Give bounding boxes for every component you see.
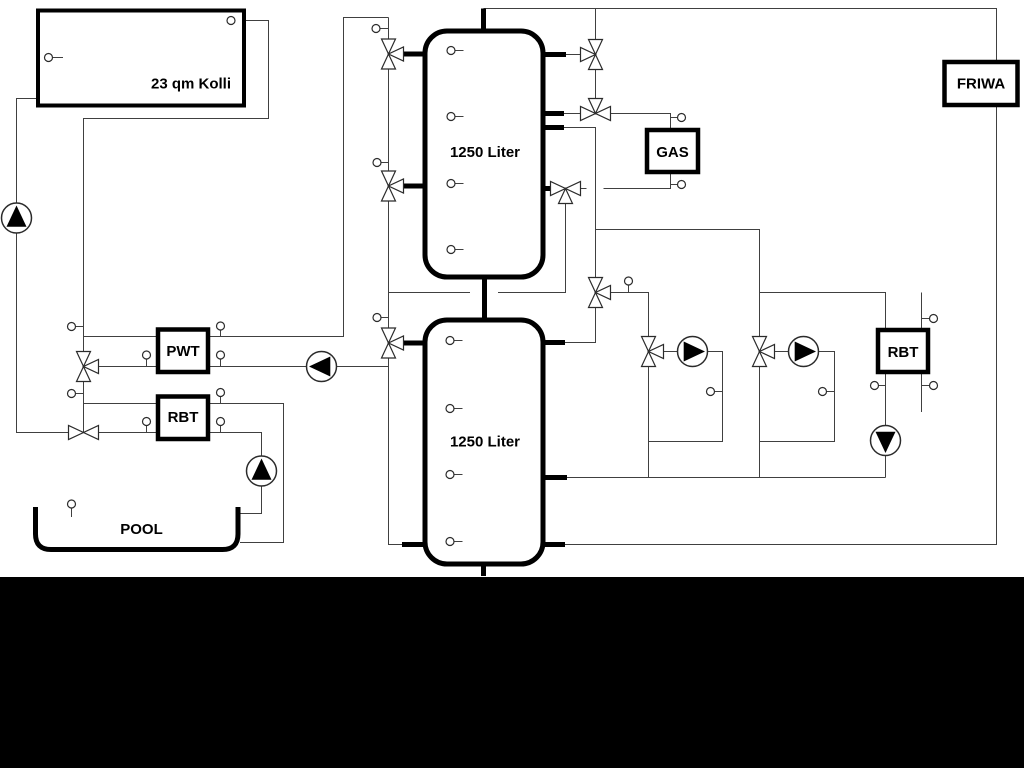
svg-text:POOL: POOL (120, 521, 163, 538)
svg-text:RBT: RBT (168, 409, 199, 426)
svg-text:23 qm Kolli: 23 qm Kolli (151, 76, 231, 93)
svg-text:PWT: PWT (166, 343, 199, 360)
svg-text:GAS: GAS (656, 144, 689, 161)
svg-text:1250 Liter: 1250 Liter (450, 434, 520, 451)
svg-text:1250 Liter: 1250 Liter (450, 144, 520, 161)
svg-text:RBT: RBT (888, 344, 919, 361)
svg-text:FRIWA: FRIWA (957, 76, 1005, 93)
